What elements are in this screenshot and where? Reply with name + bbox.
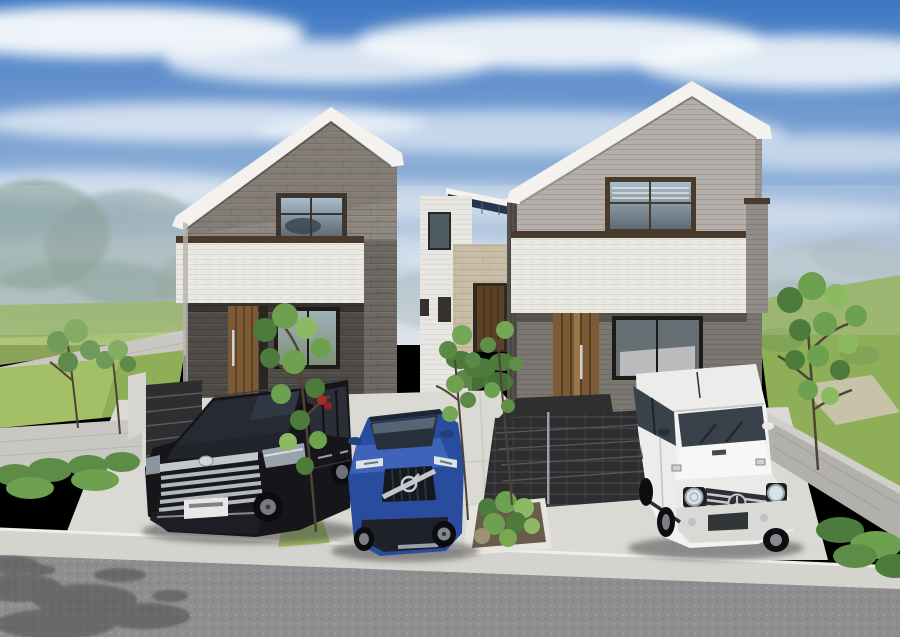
right-band-texture [511,238,747,313]
steps-side-wall [128,372,146,440]
blue-suv-mirror-left [348,437,362,445]
middle-house-small-window-1 [420,299,429,316]
hood-vent [712,450,726,456]
blue-suv-mirror-right [440,430,454,438]
white-suv-mirror-left [658,428,670,436]
white-suv-wheel-rear-left [639,478,653,506]
middle-house-small-window-2 [438,297,451,322]
minivan-alloy-rear [336,465,348,479]
round-headlight-right [768,485,784,501]
window-tree-reflection [285,218,321,234]
indicator-left [672,465,681,471]
minivan-headlight-left [146,455,160,475]
parapet-coping [744,198,770,204]
minivan-emblem [199,456,213,466]
left-door-handle [232,330,235,366]
bumper-plate-recess [708,512,748,531]
indicator-right [756,459,765,465]
right-door-handle [580,345,583,379]
middle-house-window-glass [430,214,449,248]
exterior-rendering [0,0,900,637]
minivan-license-plate [184,497,228,519]
left-band-texture [176,243,364,303]
fog-light-right [760,514,768,522]
white-suv-mirror-right [762,422,774,430]
right-band-coping [511,231,747,238]
parapet-texture [746,204,768,313]
blue-suv-hub-right [442,532,446,536]
skid-plate [398,545,438,547]
blue-suv-alloy-left [359,533,369,545]
plate-characters [189,504,223,506]
left-corner-highlight [183,222,188,398]
minivan-hub-front [266,505,271,510]
left-stone-column-texture [364,240,397,398]
fog-light-left [688,518,696,526]
round-headlight-left [686,489,703,506]
left-band-coping [176,236,364,243]
rendering-canvas [0,0,900,637]
handrail-post [547,412,550,504]
alloy-front-left [662,514,670,530]
alloy-front-right [770,534,782,546]
